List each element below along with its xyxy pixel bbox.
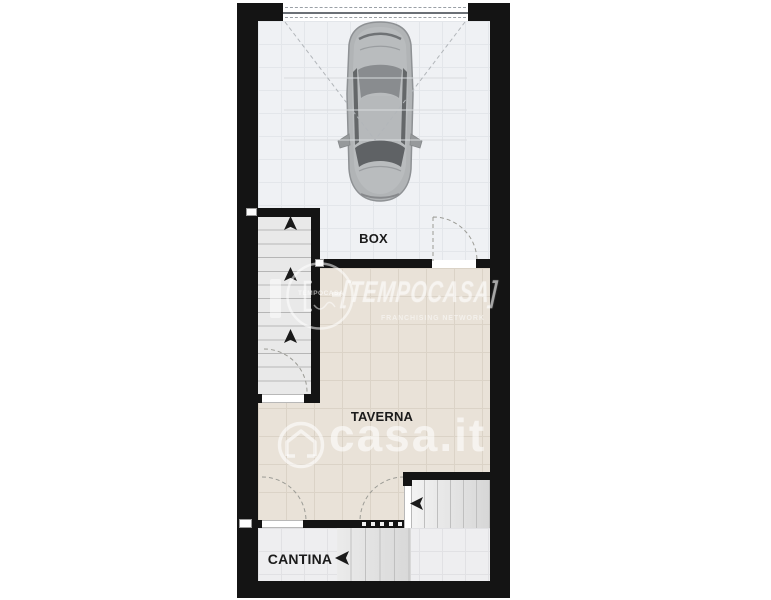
door-opening-stairs [262, 394, 304, 403]
garage-door-dashed-line-bottom [285, 17, 466, 18]
wall-box-taverna-left [311, 259, 432, 268]
wall-right-stair-top [403, 472, 490, 480]
wall-top-left [237, 3, 283, 21]
car-top-view [334, 18, 426, 206]
wall-hatch-ticks [362, 522, 404, 526]
room-label-taverna: TAVERNA [346, 409, 418, 424]
wall-left [237, 3, 258, 598]
wall-notch-box-taverna [315, 259, 324, 267]
door-opening-taverna-cantina [262, 520, 303, 528]
wall-notch-stair-top [246, 208, 257, 216]
wall-stair-right [311, 208, 320, 403]
floor-plan-image: BOX TAVERNA CANTINA TEMPOCASA [TEMPOCASA… [0, 0, 771, 600]
room-label-cantina: CANTINA [266, 551, 334, 567]
wall-box-taverna-right [476, 259, 490, 268]
garage-door-solid-line [283, 12, 468, 14]
wall-stair-bottom-right [304, 394, 320, 403]
wall-notch-bottom-left [239, 519, 252, 528]
wall-right [490, 3, 510, 598]
staircase-cantina-flight [337, 528, 411, 581]
wall-top-right [468, 3, 510, 21]
door-opening-taverna-stairs [404, 486, 412, 528]
car-mirror-left [338, 134, 350, 148]
room-label-box: BOX [351, 231, 396, 246]
garage-door-dashed-line-top [285, 7, 466, 8]
car-mirror-right [410, 134, 422, 148]
staircase-left [258, 217, 311, 395]
garage-door-opening [283, 4, 468, 21]
wall-right-stair-jamb [403, 472, 412, 486]
car-roof [359, 96, 401, 144]
wall-bottom [237, 581, 510, 598]
staircase-right-upper-flight [412, 480, 490, 528]
